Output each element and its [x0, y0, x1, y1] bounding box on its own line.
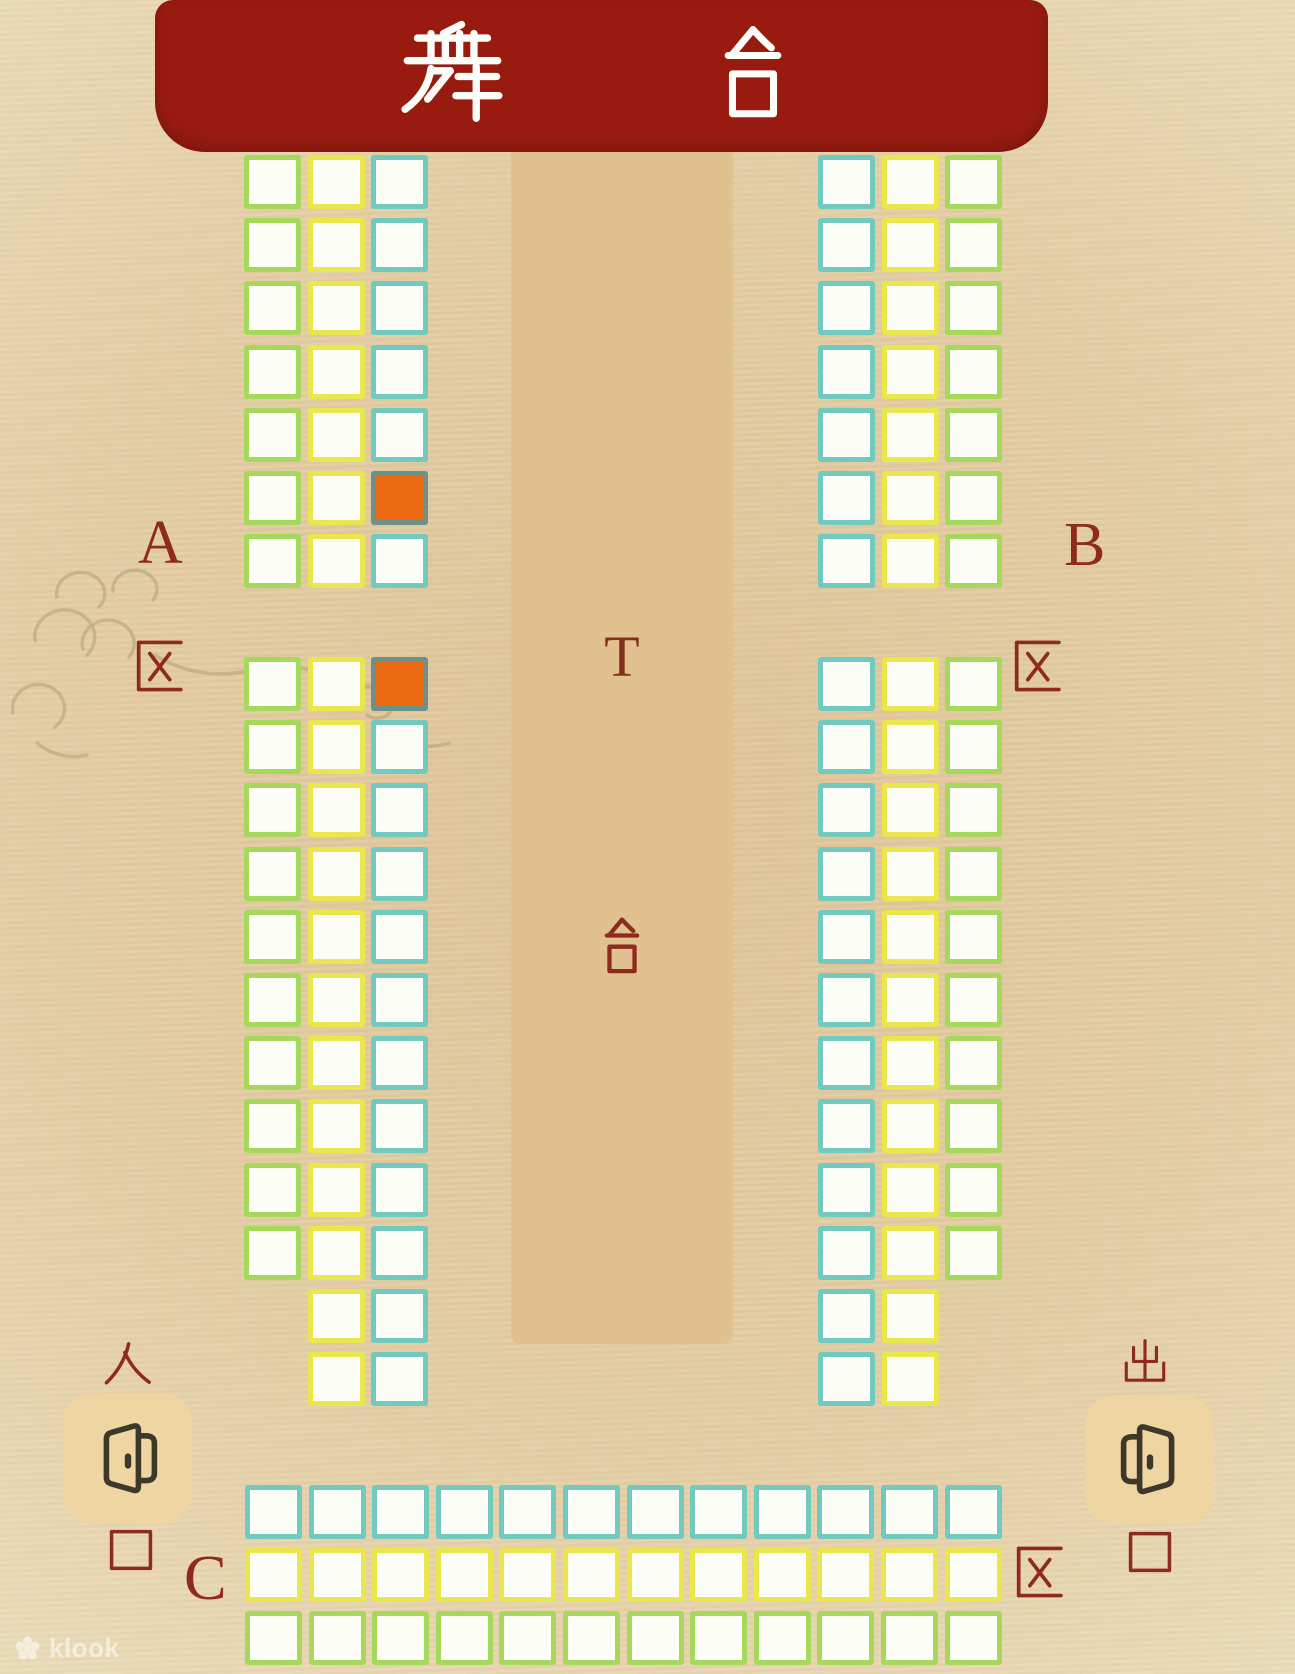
seat[interactable] [818, 1099, 875, 1153]
seat[interactable] [371, 345, 428, 399]
seat[interactable] [818, 973, 875, 1027]
seat[interactable] [244, 534, 301, 588]
runway-label-t: T [511, 628, 733, 686]
seat[interactable] [945, 1163, 1002, 1217]
seat[interactable] [882, 1226, 939, 1280]
seat[interactable] [818, 1226, 875, 1280]
seat[interactable] [244, 408, 301, 462]
seat[interactable] [371, 847, 428, 901]
seat[interactable] [308, 534, 365, 588]
seat[interactable] [818, 155, 875, 209]
seat[interactable] [945, 408, 1002, 462]
seat[interactable] [882, 1036, 939, 1090]
seat[interactable] [372, 1611, 429, 1665]
seat[interactable] [945, 910, 1002, 964]
seat[interactable] [245, 1548, 302, 1602]
seat[interactable] [945, 471, 1002, 525]
seat[interactable] [881, 1548, 938, 1602]
seat[interactable] [371, 1352, 428, 1406]
seat[interactable] [308, 657, 365, 711]
seat[interactable] [882, 218, 939, 272]
runway: T [511, 152, 733, 1344]
seat[interactable] [308, 408, 365, 462]
seat[interactable] [818, 1352, 875, 1406]
zone-c-letter: C [184, 1546, 227, 1610]
seat[interactable] [818, 657, 875, 711]
seat[interactable] [945, 720, 1002, 774]
seat[interactable] [244, 471, 301, 525]
seat[interactable] [818, 783, 875, 837]
seat[interactable] [818, 720, 875, 774]
seat[interactable] [371, 1163, 428, 1217]
seat[interactable] [945, 345, 1002, 399]
seat[interactable] [244, 910, 301, 964]
seat[interactable] [244, 1036, 301, 1090]
seat[interactable] [371, 910, 428, 964]
seat[interactable] [817, 1485, 874, 1539]
seat[interactable] [308, 471, 365, 525]
seat[interactable] [372, 1485, 429, 1539]
zone-a-letter: A [138, 512, 183, 574]
seat[interactable] [371, 408, 428, 462]
seat[interactable] [308, 1226, 365, 1280]
seat[interactable] [882, 783, 939, 837]
seat[interactable] [308, 281, 365, 335]
brand-watermark: klook [14, 1633, 119, 1663]
seat[interactable] [371, 783, 428, 837]
seat[interactable] [690, 1485, 747, 1539]
stage-char-wu [396, 19, 509, 134]
seat[interactable] [308, 1163, 365, 1217]
seat[interactable] [371, 1226, 428, 1280]
seat[interactable] [308, 1352, 365, 1406]
seat[interactable] [244, 218, 301, 272]
seat[interactable] [308, 847, 365, 901]
seat[interactable] [308, 1289, 365, 1343]
seat[interactable] [627, 1548, 684, 1602]
seat[interactable] [244, 1163, 301, 1217]
seat[interactable] [754, 1611, 811, 1665]
exit-door-icon [1110, 1420, 1190, 1500]
seat[interactable] [945, 1611, 1002, 1665]
seat[interactable] [754, 1548, 811, 1602]
seat[interactable] [308, 783, 365, 837]
seat[interactable] [499, 1485, 556, 1539]
seat[interactable] [882, 1163, 939, 1217]
seat[interactable] [882, 847, 939, 901]
seat[interactable] [945, 155, 1002, 209]
seat[interactable] [308, 973, 365, 1027]
stage-char-tai [699, 20, 807, 132]
seat-occupied[interactable] [371, 657, 428, 711]
seat[interactable] [308, 218, 365, 272]
seat[interactable] [882, 1289, 939, 1343]
seat[interactable] [563, 1548, 620, 1602]
seat[interactable] [818, 1036, 875, 1090]
seat[interactable] [818, 910, 875, 964]
seat[interactable] [882, 534, 939, 588]
seat[interactable] [244, 1099, 301, 1153]
seat[interactable] [817, 1611, 874, 1665]
seat[interactable] [945, 1485, 1002, 1539]
seat[interactable] [882, 1352, 939, 1406]
seat[interactable] [945, 218, 1002, 272]
seat[interactable] [372, 1548, 429, 1602]
seat[interactable] [754, 1485, 811, 1539]
seat[interactable] [371, 1099, 428, 1153]
seat[interactable] [244, 657, 301, 711]
seat[interactable] [818, 345, 875, 399]
seat[interactable] [308, 720, 365, 774]
seat[interactable] [818, 1289, 875, 1343]
seat[interactable] [818, 218, 875, 272]
seating-chart: T A B C klook [0, 0, 1295, 1674]
seat[interactable] [499, 1611, 556, 1665]
zone-c-qu-glyph [1010, 1540, 1072, 1604]
zone-a-qu-glyph [130, 634, 192, 698]
seat[interactable] [882, 345, 939, 399]
seat[interactable] [436, 1548, 493, 1602]
seat[interactable] [882, 408, 939, 462]
seat[interactable] [371, 281, 428, 335]
seat[interactable] [690, 1611, 747, 1665]
seat[interactable] [945, 783, 1002, 837]
seat[interactable] [945, 1036, 1002, 1090]
seat[interactable] [882, 910, 939, 964]
seat[interactable] [882, 155, 939, 209]
seat[interactable] [308, 1099, 365, 1153]
seat[interactable] [945, 1099, 1002, 1153]
seat[interactable] [244, 281, 301, 335]
seat[interactable] [245, 1485, 302, 1539]
seat[interactable] [436, 1611, 493, 1665]
seat[interactable] [945, 281, 1002, 335]
seat[interactable] [244, 973, 301, 1027]
seat[interactable] [371, 218, 428, 272]
seat[interactable] [244, 720, 301, 774]
seat[interactable] [818, 1163, 875, 1217]
seat[interactable] [436, 1485, 493, 1539]
seat[interactable] [371, 1036, 428, 1090]
seat[interactable] [945, 973, 1002, 1027]
seat[interactable] [244, 345, 301, 399]
seat[interactable] [371, 720, 428, 774]
seat[interactable] [882, 471, 939, 525]
seat[interactable] [499, 1548, 556, 1602]
seat[interactable] [308, 345, 365, 399]
seat[interactable] [309, 1548, 366, 1602]
seat[interactable] [881, 1485, 938, 1539]
seat[interactable] [308, 155, 365, 209]
seat[interactable] [945, 847, 1002, 901]
seat[interactable] [882, 281, 939, 335]
seat[interactable] [882, 1099, 939, 1153]
runway-label-tai-glyph [589, 914, 655, 982]
seat[interactable] [627, 1485, 684, 1539]
seat[interactable] [945, 1226, 1002, 1280]
brand-name: klook [49, 1633, 119, 1664]
seat[interactable] [244, 783, 301, 837]
seat[interactable] [627, 1611, 684, 1665]
exit-kou-glyph [1123, 1524, 1177, 1580]
seat[interactable] [371, 534, 428, 588]
seat[interactable] [817, 1548, 874, 1602]
brand-flower-icon [14, 1635, 41, 1662]
seat[interactable] [945, 657, 1002, 711]
seat[interactable] [371, 155, 428, 209]
seat[interactable] [563, 1485, 620, 1539]
seat[interactable] [308, 1036, 365, 1090]
seat[interactable] [244, 1226, 301, 1280]
seat[interactable] [882, 973, 939, 1027]
seat[interactable] [309, 1485, 366, 1539]
seat[interactable] [245, 1611, 302, 1665]
seat[interactable] [818, 471, 875, 525]
exit-chu-glyph [1119, 1334, 1171, 1392]
stage-banner [155, 0, 1048, 152]
seat[interactable] [945, 1548, 1002, 1602]
seat[interactable] [945, 534, 1002, 588]
zone-b-letter: B [1064, 514, 1105, 576]
seat[interactable] [690, 1548, 747, 1602]
seat[interactable] [818, 408, 875, 462]
seat[interactable] [371, 1289, 428, 1343]
seat[interactable] [818, 281, 875, 335]
seat[interactable] [563, 1611, 620, 1665]
seat[interactable] [309, 1611, 366, 1665]
seat[interactable] [882, 720, 939, 774]
seat[interactable] [244, 155, 301, 209]
seat[interactable] [371, 973, 428, 1027]
entrance-ru-glyph [100, 1338, 154, 1394]
zone-b-qu-glyph [1008, 634, 1070, 698]
seat[interactable] [308, 910, 365, 964]
entrance-door-icon [88, 1419, 168, 1499]
seat[interactable] [818, 534, 875, 588]
seat[interactable] [882, 657, 939, 711]
seat-occupied[interactable] [371, 471, 428, 525]
entrance-kou-glyph [104, 1522, 158, 1578]
seat[interactable] [881, 1611, 938, 1665]
seat[interactable] [818, 847, 875, 901]
seat[interactable] [244, 847, 301, 901]
